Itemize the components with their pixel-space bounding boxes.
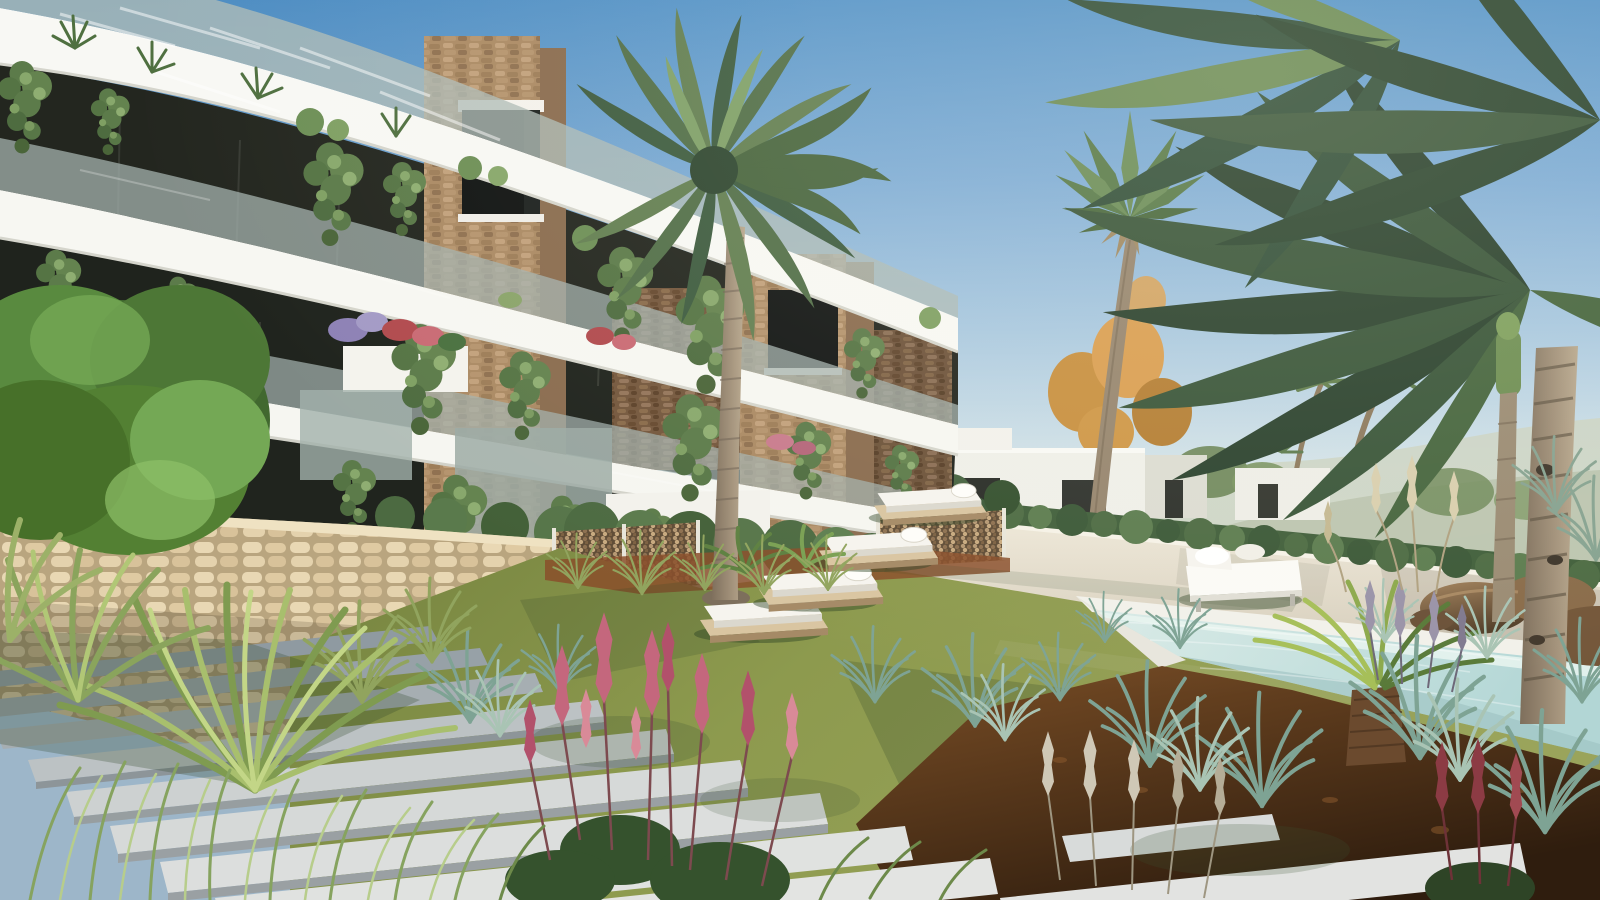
light-wash [0,0,1600,900]
architectural-render [0,0,1600,900]
render-canvas [0,0,1600,900]
